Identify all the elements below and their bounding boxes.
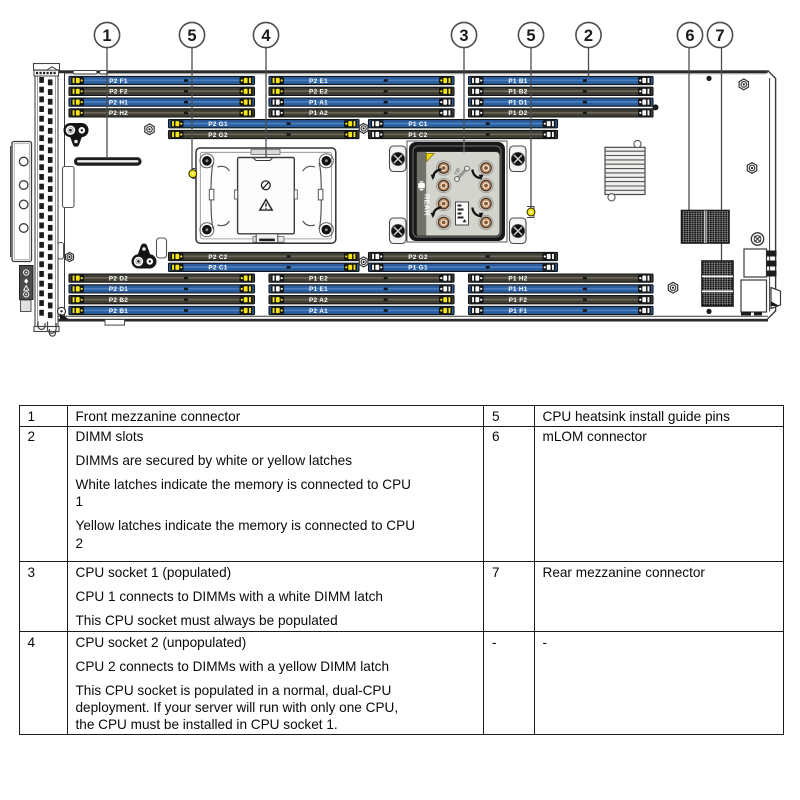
svg-text:P2 G2: P2 G2 <box>208 132 228 139</box>
svg-text:P2 A2: P2 A2 <box>309 297 328 304</box>
svg-text:P1 C2: P1 C2 <box>408 132 427 139</box>
svg-text:P1 F2: P1 F2 <box>509 297 528 304</box>
svg-text:4: 4 <box>261 27 271 45</box>
svg-text:P1 D1: P1 D1 <box>508 99 527 106</box>
svg-text:P2 D2: P2 D2 <box>109 275 128 282</box>
svg-text:P2 F1: P2 F1 <box>109 78 128 85</box>
svg-text:P1 F1: P1 F1 <box>509 308 528 315</box>
svg-text:P2 H1: P2 H1 <box>109 99 128 106</box>
svg-text:P2 E1: P2 E1 <box>309 78 328 85</box>
svg-text:P1 A2: P1 A2 <box>309 110 328 117</box>
svg-text:5: 5 <box>526 27 535 45</box>
svg-text:P1 C1: P1 C1 <box>408 121 427 128</box>
svg-text:2: 2 <box>584 27 593 45</box>
svg-text:P2 G1: P2 G1 <box>208 121 228 128</box>
svg-text:P1 E1: P1 E1 <box>309 286 328 293</box>
svg-text:P1 B1: P1 B1 <box>508 78 527 85</box>
svg-text:P2 E2: P2 E2 <box>309 89 328 96</box>
svg-text:P1 D2: P1 D2 <box>508 110 527 117</box>
svg-text:P1 A1: P1 A1 <box>309 99 328 106</box>
svg-text:P2 F2: P2 F2 <box>109 89 128 96</box>
svg-text:P2 B1: P2 B1 <box>109 308 128 315</box>
svg-text:P2 A1: P2 A1 <box>309 308 328 315</box>
svg-text:P2 D1: P2 D1 <box>109 286 128 293</box>
svg-text:P1 B2: P1 B2 <box>508 89 527 96</box>
svg-text:1: 1 <box>102 27 111 45</box>
svg-text:P1 E2: P1 E2 <box>309 275 328 282</box>
svg-text:6: 6 <box>685 27 694 45</box>
svg-text:5: 5 <box>187 27 196 45</box>
svg-text:P2 C1: P2 C1 <box>208 265 227 272</box>
svg-text:P1 G1: P1 G1 <box>408 265 428 272</box>
svg-text:P2 H2: P2 H2 <box>109 110 128 117</box>
svg-text:3: 3 <box>459 27 468 45</box>
svg-text:P1 H2: P1 H2 <box>508 275 527 282</box>
svg-text:P2 G2: P2 G2 <box>408 254 428 261</box>
svg-text:7: 7 <box>715 27 724 45</box>
svg-text:P2 B2: P2 B2 <box>109 297 128 304</box>
svg-text:P2 C2: P2 C2 <box>208 254 227 261</box>
svg-text:REAR: REAR <box>423 194 432 216</box>
svg-text:P1 H1: P1 H1 <box>508 286 527 293</box>
